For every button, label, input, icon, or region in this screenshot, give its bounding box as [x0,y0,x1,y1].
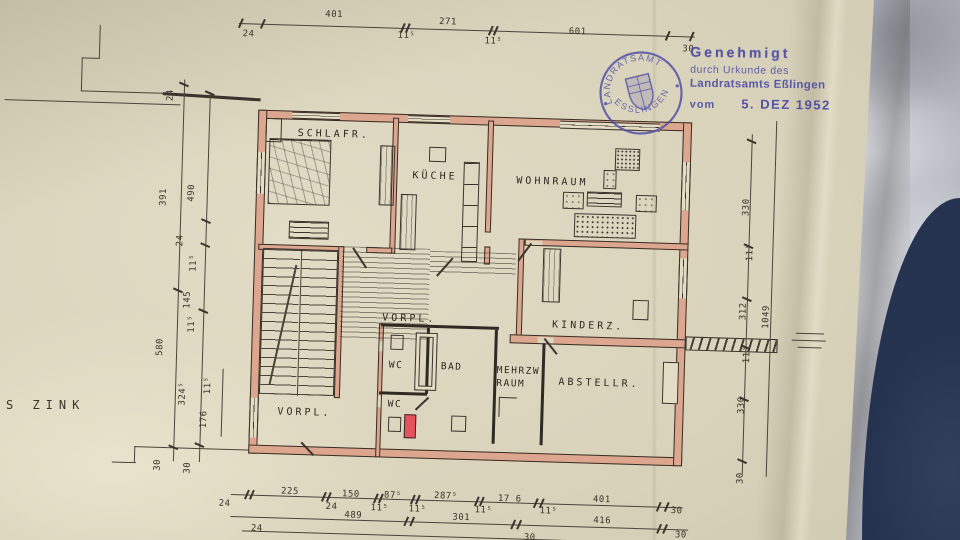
side-table [603,170,617,189]
site-line [81,57,83,91]
dim-left: 24 [175,234,185,246]
stamp-line-3: Landratsamts Eßlingen [690,78,846,92]
dim-left: 391 [158,188,169,206]
wash-basin [451,416,466,432]
dim-right: 30 [735,472,745,484]
dim-left: 324⁵ [178,382,189,406]
site-line [5,99,181,105]
toilet [388,417,401,432]
room-label-mehrzw-1: MEHRZW- [497,365,548,377]
site-line [796,333,824,335]
dim-right: 11⁵ [745,243,756,261]
site-line [134,446,135,462]
armchair [563,192,584,210]
bed [268,138,332,206]
dimension-line-left-inner [199,92,211,462]
dim-left: 11⁵ [203,376,214,394]
partition-wc-wc [379,391,427,395]
dim-right: 1049 [761,305,772,329]
dim-left: 30 [183,462,193,474]
dim-bottom: 24 [219,499,231,509]
window [678,258,688,298]
architect-name: S ZINK [6,398,85,412]
tiled-stove [615,148,641,171]
dim-left: 11⁵ [187,315,198,333]
stair-treads [298,250,338,397]
dim-right: 330 [737,396,748,414]
dim-bottom: 87⁵ [384,491,402,502]
dimension-line-right-outer [766,121,778,477]
kitchen-sink [429,147,446,162]
dim-top: 24 [242,29,254,39]
dimension-line-top [239,23,695,38]
corner-shelf [498,397,517,418]
child-bed [542,248,562,303]
dim-bottom: 225 [281,486,299,497]
room-label-vorpl-mid: VORPL. [382,312,436,325]
dim-left: 24 [166,89,176,101]
door-gap [379,341,382,351]
door-gap [378,395,381,407]
site-line [792,340,826,342]
window [681,162,691,210]
window [408,115,450,123]
dim-bottom: 11⁵ [474,505,492,516]
site-line [99,25,101,59]
dim-bottom: 30 [670,506,682,516]
dim-bottom: 489 [344,510,362,521]
dim-bottom: 24 [251,524,263,534]
armchair [636,195,657,213]
dim-bottom: 401 [593,495,611,506]
dim-bottom: 30 [524,533,536,540]
stamp-date: 5. DEZ 1952 [741,96,831,112]
dim-bottom: 17 6 [498,494,522,505]
room-label-abstellr: ABSTELLR. [558,377,639,390]
dim-bottom: 287⁵ [434,491,458,502]
room-label-schlafr: SCHLAFR. [298,128,370,141]
dim-bottom: 11⁵ [370,503,388,514]
bathtub [414,332,438,391]
dim-right: 11⁵ [742,345,753,363]
room-label-mehrzw-2: RAUM [496,378,525,390]
partition-mehrzw-abstellr [540,343,546,445]
room-label-wc-lower: WC [388,399,403,410]
stamp-line-1: Genehmigt [690,44,846,62]
dim-top: 11⁵ [484,36,502,47]
wardrobe [265,118,282,142]
room-label-wc-upper: WC [389,360,404,371]
sofa [574,213,637,239]
dim-left: 580 [155,338,166,356]
room-label-bad: BAD [441,361,463,373]
dim-left: 145 [182,291,193,309]
site-line [112,461,136,463]
dim-right: 330 [741,198,752,216]
dim-bottom: 150 [342,489,360,500]
toilet [390,335,403,350]
site-line [81,90,167,94]
corridor-floor-hatch [340,246,431,341]
stamp-vom-label: vom [690,99,716,111]
room-label-kueche: KÜCHE [412,170,457,182]
dim-bottom: 24 [325,502,337,512]
site-line [82,57,100,59]
room-label-vorpl-lower: VORPL. [277,406,331,419]
dim-left: 176 [199,410,210,428]
photo-of-floor-plan: 24 401 11⁵ 271 11⁵ 601 30 24 225 24 150 … [0,0,960,540]
dim-bottom: 30 [675,530,687,540]
dim-bottom: 11⁵ [539,506,557,517]
wall-kueche-wohnraum [485,120,494,232]
dim-right: 312 [738,302,749,320]
staircase [259,248,338,396]
plan-paper: 24 401 11⁵ 271 11⁵ 601 30 24 225 24 150 … [0,0,960,540]
dim-top: 601 [569,27,587,38]
dim-bottom: 11⁵ [408,504,426,515]
dresser [289,221,330,240]
kitchen-counter [399,194,417,250]
dim-top: 271 [439,17,457,28]
coffee-table [587,191,622,207]
desk-shelf [632,300,649,320]
dim-left: 30 [153,459,163,471]
dimension-line-left-detail [221,369,224,437]
room-label-wohnraum: WOHNRAUM [516,175,588,188]
stamp-line-2: durch Urkunde des [690,64,846,78]
room-label-kinderz: KINDERZ. [552,319,624,332]
window [292,112,340,120]
dim-top: 11⁵ [397,31,415,42]
site-line [134,446,250,450]
dimension-line-bottom-3 [242,530,682,540]
dim-bottom: 301 [452,513,470,524]
wardrobe [379,145,396,205]
dim-left: 490 [187,184,198,202]
storage-niche [662,362,679,404]
dim-left: 11⁵ [189,254,200,272]
dim-top: 401 [325,10,343,21]
site-line [798,347,822,349]
window [249,398,259,438]
door-leaf [415,397,429,410]
dim-bottom: 416 [593,516,611,527]
masonry-wall [685,336,777,353]
wall-kinderz-bottom [510,334,686,348]
kitchen-appliance-column [461,162,480,262]
window [256,152,266,194]
chimney [404,414,417,438]
seal-dot [675,84,679,88]
